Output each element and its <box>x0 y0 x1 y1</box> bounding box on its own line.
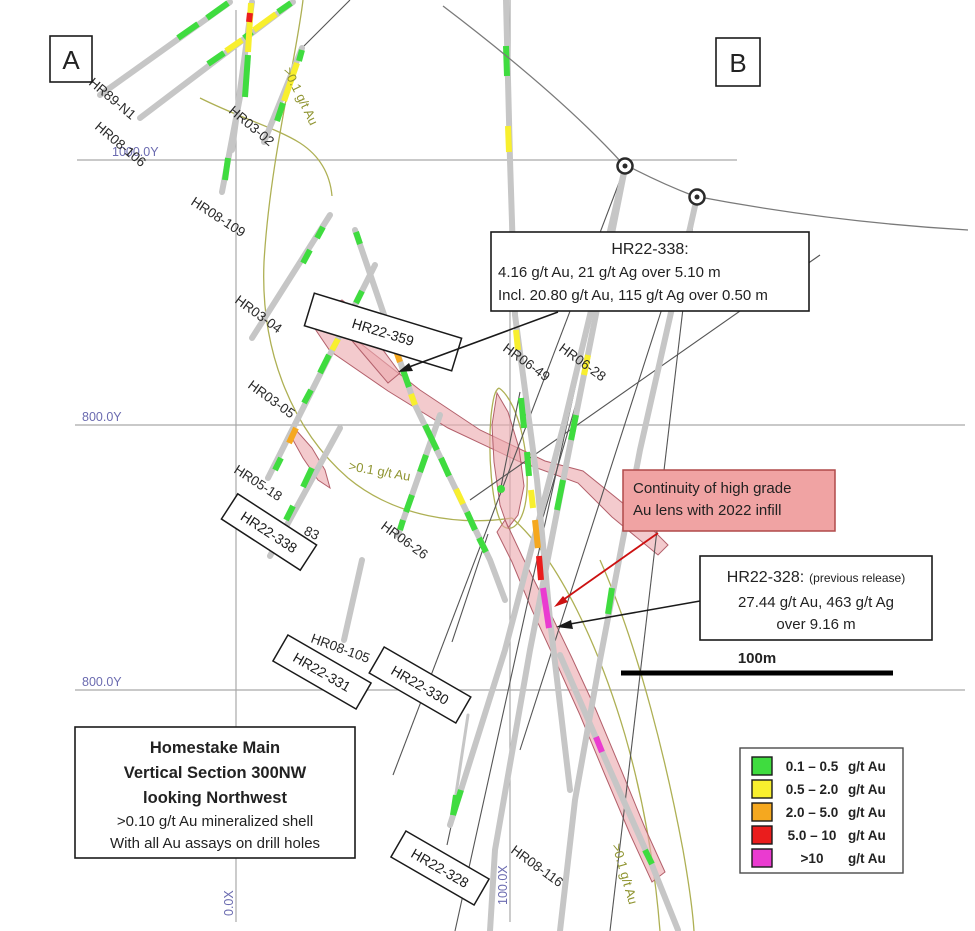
scale-label: 100m <box>738 650 776 667</box>
legend-item: 0.5 – 2.0g/t Au <box>752 780 886 798</box>
annotation-line: 4.16 g/t Au, 21 g/t Ag over 5.10 m <box>498 264 721 281</box>
annotation-hr22-338: HR22-338: 4.16 g/t Au, 21 g/t Ag over 5.… <box>398 232 809 372</box>
axis-label-0x: 0.0X <box>222 890 236 916</box>
title-line: >0.10 g/t Au mineralized shell <box>117 813 313 830</box>
legend-swatch-orange <box>752 803 772 821</box>
arrowhead <box>556 620 573 629</box>
svg-text:0.5 – 2.0g/t Au: 0.5 – 2.0g/t Au <box>786 782 886 797</box>
svg-text:0.1 – 0.5g/t Au: 0.1 – 0.5g/t Au <box>786 759 886 774</box>
annotation-line: Incl. 20.80 g/t Au, 115 g/t Ag over 0.50… <box>498 287 768 304</box>
drill-label: HR08-116 <box>508 842 566 890</box>
marker-a: A <box>62 45 80 75</box>
drill-label: HR08-109 <box>188 194 248 240</box>
trace-hr08-105 <box>344 560 362 640</box>
title-box: Homestake Main Vertical Section 300NW lo… <box>75 727 355 858</box>
axis-label-800y-a: 800.0Y <box>82 410 122 424</box>
annotation-line: over 9.16 m <box>776 616 855 633</box>
boxed-label-hr22-330: HR22-330 <box>369 647 471 723</box>
shell-label: >0.1 g/t Au <box>347 458 411 484</box>
title-line: Vertical Section 300NW <box>124 764 307 782</box>
legend-item: 0.1 – 0.5g/t Au <box>752 757 886 775</box>
scale-bar: 100m <box>621 650 893 673</box>
marker-b: B <box>729 48 746 78</box>
legend-item: 2.0 – 5.0g/t Au <box>752 803 886 821</box>
annotation-line: Continuity of high grade <box>633 480 791 497</box>
legend-swatch-green <box>752 757 772 775</box>
green-dot <box>520 412 526 418</box>
surface-and-collars <box>443 6 968 230</box>
svg-text:2.0 – 5.0g/t Au: 2.0 – 5.0g/t Au <box>786 805 886 820</box>
legend-swatch-red <box>752 826 772 844</box>
section-diagram: 1000.0Y 800.0Y 800.0Y 0.0X 100.0X HR89-N… <box>0 0 975 931</box>
legend-swatch-yellow <box>752 780 772 798</box>
drill-label: HR06-49 <box>500 340 553 384</box>
annotation-title: HR22-338: <box>611 241 688 258</box>
annotation-line: Au lens with 2022 infill <box>633 502 781 519</box>
title-line: With all Au assays on drill holes <box>110 835 320 852</box>
section-markers: A B <box>50 36 760 86</box>
green-dot <box>497 485 505 493</box>
axis-label-100x: 100.0X <box>496 865 510 905</box>
axis-label-800y-b: 800.0Y <box>82 675 122 689</box>
title-line: looking Northwest <box>143 789 287 807</box>
annotation-line: 27.44 g/t Au, 463 g/t Ag <box>738 594 894 611</box>
legend-item: 5.0 – 10g/t Au <box>752 826 886 844</box>
title-line: Homestake Main <box>150 739 280 757</box>
annotation-title: HR22-328:(previous release) <box>727 569 905 586</box>
drill-label: HR89-N1 <box>86 75 139 123</box>
legend-item: >10g/t Au <box>752 849 886 867</box>
legend-swatch-magenta <box>752 849 772 867</box>
legend: 0.1 – 0.5g/t Au 0.5 – 2.0g/t Au 2.0 – 5.… <box>740 748 903 873</box>
cross-section-figure: 1000.0Y 800.0Y 800.0Y 0.0X 100.0X HR89-N… <box>0 0 975 931</box>
